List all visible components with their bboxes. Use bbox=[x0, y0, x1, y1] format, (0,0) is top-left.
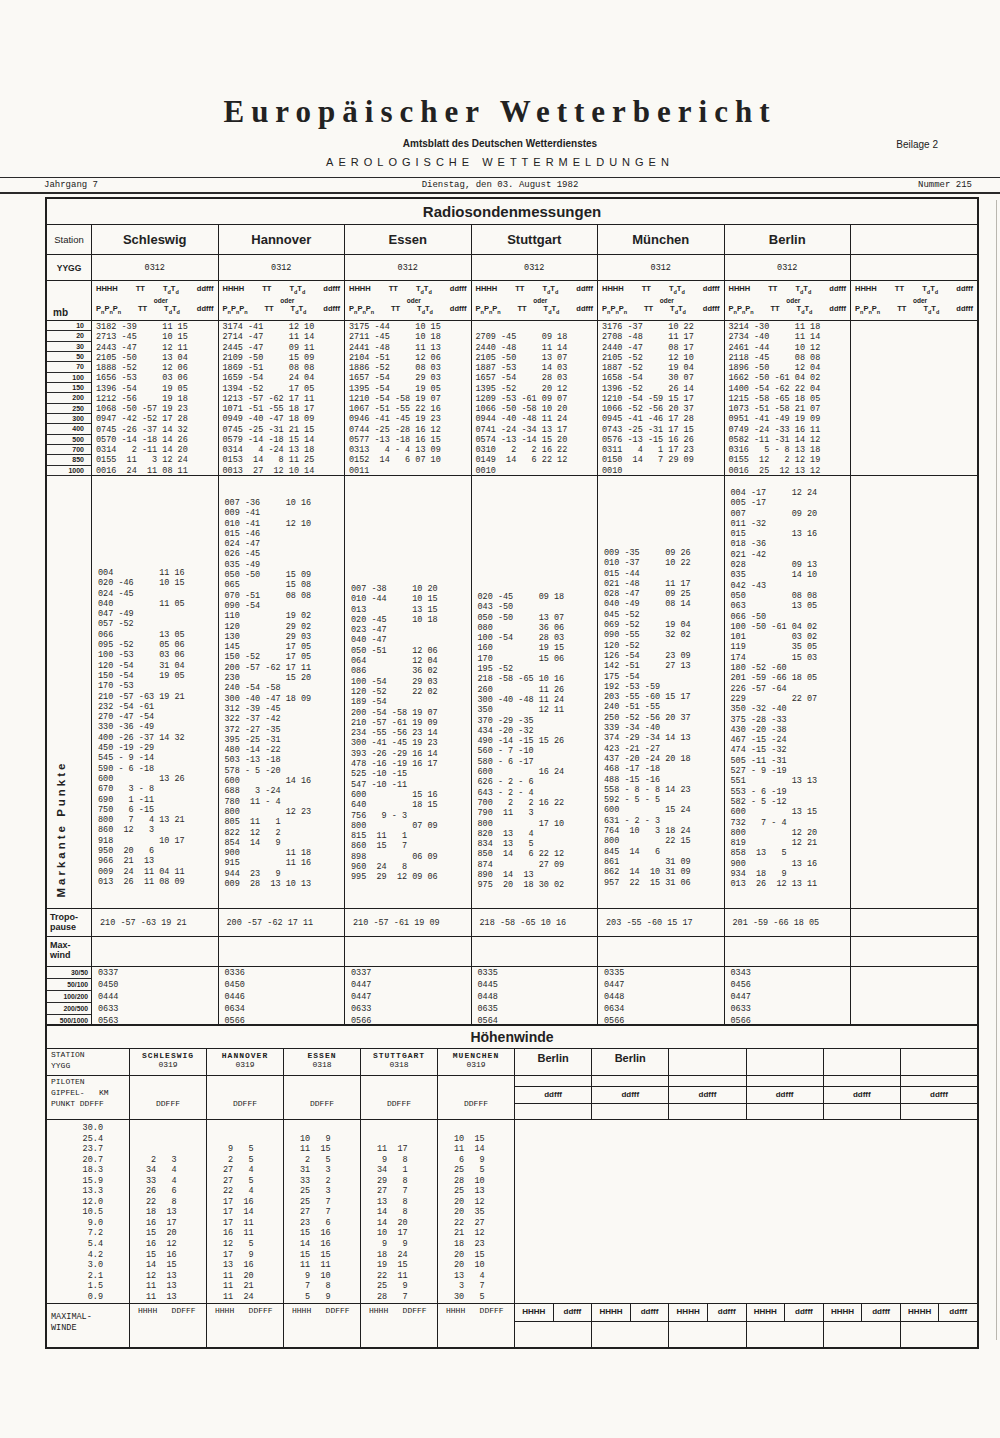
station-name-cell: Stuttgart bbox=[472, 225, 599, 254]
hw-right-title bbox=[824, 1049, 900, 1052]
hw-piloten-cell: DDFFF 24.6 9 5 bbox=[207, 1076, 284, 1119]
hw-right-ddfff: ddfff bbox=[515, 1087, 591, 1104]
yygg-value: 0312 bbox=[725, 255, 852, 280]
hw-wind-right-area bbox=[515, 1120, 977, 1303]
hw-station-name: SCHLESWIG bbox=[130, 1049, 206, 1060]
markante-label: Markante Punkte bbox=[55, 761, 67, 898]
ratio-label: 200/500 bbox=[47, 1003, 91, 1015]
pressure-level-cell: 3182 -39 11 15 2713 -45 10 15 2443 -47 1… bbox=[92, 321, 219, 475]
ratio-cell: 0337 0450 0444 0633 0563 bbox=[92, 967, 219, 1026]
hw-maximal-hhhh: HHHH bbox=[592, 1304, 631, 1322]
hw-maximal-label-cell: MAXIMAL- WINDE bbox=[47, 1304, 130, 1347]
pressure-level-cell: 2709 -45 09 18 2440 -48 11 14 2105 -50 1… bbox=[472, 321, 599, 475]
hw-maximal-right-cell: HHHH ddfff bbox=[901, 1304, 977, 1347]
hw-piloten-ddfff: DDFFF bbox=[438, 1098, 514, 1109]
pressure-level-cell-empty bbox=[851, 321, 977, 475]
masthead-subtitle: Amtsblatt des Deutschen Wetterdienstes bbox=[0, 138, 1000, 149]
masthead-rule-bottom bbox=[0, 192, 1000, 194]
tropopause-value: 200 -57 -62 17 11 bbox=[219, 909, 345, 928]
hw-station-cells: SCHLESWIG 0319 HANNOVER 0319 ESSEN 0318 bbox=[130, 1049, 515, 1075]
tropopause-row: Tropo- pause 210 -57 -63 19 21 200 -57 -… bbox=[47, 908, 977, 936]
yygg-row: YYGG 0312 0312 0312 0312 0312 0312 bbox=[47, 254, 977, 280]
tropopause-cells: 210 -57 -63 19 21 200 -57 -62 17 11 210 … bbox=[92, 909, 851, 936]
hw-piloten-row: PILOTEN GIPFEL- KM PUNKT DDFFF DDFFF 27.… bbox=[47, 1075, 977, 1119]
hw-maximal-ddfff: ddfff bbox=[785, 1304, 823, 1322]
hw-right-spacer bbox=[669, 1076, 745, 1087]
tropopause-cell: 201 -59 -66 18 05 bbox=[725, 909, 852, 936]
hw-station-cell: STUTTGART 0318 bbox=[361, 1049, 438, 1075]
hw-wind-values: 10 9 11 15 2 5 31 3 33 2 25 3 25 7 27 7 … bbox=[284, 1120, 360, 1302]
hw-right-ddfff: ddfff bbox=[747, 1087, 823, 1104]
page-title: Europäischer Wetterbericht bbox=[0, 94, 1000, 130]
hw-piloten-cells: DDFFF 27.2 6 6 DDFFF 24.6 9 5 DDFFF 28.2 bbox=[130, 1076, 515, 1119]
markante-values: 007 -36 10 16 009 -41 010 -41 12 10 015 … bbox=[219, 476, 345, 889]
hw-station-label-cell: STATION YYGG bbox=[47, 1049, 130, 1075]
hw-station-yygg: 0318 bbox=[361, 1060, 437, 1069]
thickness-ratio-rows: 30/50 50/100 100/200 200/500 500/1000 03… bbox=[47, 966, 977, 1026]
mb-level-label: 70 bbox=[47, 362, 91, 372]
maxwind-cell bbox=[472, 937, 599, 966]
hw-maximal-ddfff: ddfff bbox=[554, 1304, 592, 1322]
mb-header-cell: mb bbox=[47, 281, 92, 320]
hw-wind-right-empty bbox=[515, 1120, 977, 1303]
station-name-cells: Schleswig Hannover Essen Stuttgart Münch… bbox=[92, 225, 851, 254]
hw-maximal-ddfff: ddfff bbox=[862, 1304, 900, 1322]
hw-maximal-right-cell: HHHH ddfff bbox=[592, 1304, 669, 1347]
hw-right-title-cell bbox=[669, 1049, 746, 1075]
hw-station-name: HANNOVER bbox=[207, 1049, 283, 1060]
hw-wind-values: 2 3 34 4 33 4 26 6 22 8 18 13 16 17 15 2… bbox=[130, 1120, 206, 1302]
hw-wind-cell: 10 9 11 15 2 5 31 3 33 2 25 3 25 7 27 7 … bbox=[284, 1120, 361, 1303]
column-header-row: mb HHHH TT TdTd ddfff oder bbox=[47, 280, 977, 320]
hw-right-spacer bbox=[515, 1076, 591, 1087]
hw-wind-values: 10 15 11 14 6 9 25 5 28 10 25 13 20 12 2… bbox=[438, 1120, 514, 1302]
hw-maximal-right-cell: HHHH ddfff bbox=[515, 1304, 592, 1347]
hw-maximal-cell: HHHH DDFFF bbox=[284, 1304, 361, 1347]
hw-right-title bbox=[747, 1049, 823, 1052]
mb-label: mb bbox=[53, 307, 68, 318]
markante-values: 020 -45 09 18 043 -50 050 -50 13 07 080 … bbox=[472, 476, 598, 891]
hw-maximal-ddfff: ddfff bbox=[708, 1304, 746, 1322]
mb-level-label: 700 bbox=[47, 445, 91, 455]
hw-station-yygg: 0319 bbox=[207, 1060, 283, 1069]
hw-right-ddfff: ddfff bbox=[824, 1087, 900, 1104]
tropopause-value: 210 -57 -63 19 21 bbox=[92, 909, 218, 928]
hw-right-title bbox=[901, 1049, 977, 1052]
pressure-level-values: 3176 -37 10 22 2708 -48 11 17 2440 -47 0… bbox=[598, 321, 724, 475]
tropopause-value: 203 -55 -60 15 17 bbox=[598, 909, 724, 928]
hw-maximal-ddfff: ddfff bbox=[939, 1304, 977, 1322]
mb-level-label: 50 bbox=[47, 352, 91, 362]
hw-maximal-hhhh: HHHH bbox=[901, 1304, 940, 1322]
hw-maximal-cell: HHHH DDFFF bbox=[130, 1304, 207, 1347]
hw-station-yygg: 0319 bbox=[130, 1060, 206, 1069]
hw-right-ddfff: ddfff bbox=[669, 1087, 745, 1104]
station-name-cell: Hannover bbox=[219, 225, 346, 254]
hw-maximal-hhhh: HHHH bbox=[669, 1304, 708, 1322]
radiosonde-table: Radiosondenmessungen Station Schleswig H… bbox=[45, 197, 979, 1028]
hw-piloten-label-cell: PILOTEN GIPFEL- KM PUNKT DDFFF bbox=[47, 1076, 130, 1119]
maxwind-cells bbox=[92, 937, 851, 966]
hw-right-title-cell bbox=[901, 1049, 977, 1075]
station-name-cell: Essen bbox=[345, 225, 472, 254]
ratio-values: 0335 0445 0448 0635 0564 bbox=[472, 967, 598, 1026]
ratio-label: 30/50 bbox=[47, 967, 91, 979]
hw-station-yygg: 0319 bbox=[438, 1060, 514, 1069]
column-header-cell: HHHH TT TdTd ddfff oder PnPnPn TT TdTd d… bbox=[92, 281, 219, 320]
ratio-cells: 0337 0450 0444 0633 0563 0336 0450 0446 … bbox=[92, 967, 851, 1026]
markante-label-cell: Markante Punkte bbox=[47, 476, 92, 908]
maxwind-cell bbox=[598, 937, 725, 966]
pressure-level-cell: 3176 -37 10 22 2708 -48 11 17 2440 -47 0… bbox=[598, 321, 725, 475]
hw-station-name: ESSEN bbox=[284, 1049, 360, 1060]
ratio-cell-empty bbox=[851, 967, 977, 1026]
markante-cell: 004 -17 12 24 005 -17 007 09 20 011 -32 … bbox=[725, 476, 852, 908]
hw-station-cell: SCHLESWIG 0319 bbox=[130, 1049, 207, 1075]
ratio-values: 0336 0450 0446 0634 0566 bbox=[219, 967, 345, 1026]
mb-level-label: 20 bbox=[47, 331, 91, 341]
mb-level-label: 150 bbox=[47, 383, 91, 393]
yygg-label: YYGG bbox=[47, 255, 92, 280]
hw-station-cell: MUENCHEN 0319 bbox=[438, 1049, 515, 1075]
ratio-cell: 0335 0445 0448 0635 0564 bbox=[472, 967, 599, 1026]
hw-maximal-cells: HHHH DDFFF HHHH DDFFF HHHH DDFFF HHHH DD… bbox=[130, 1304, 515, 1347]
hw-piloten-cell: DDFFF 28.2 11 8 bbox=[284, 1076, 361, 1119]
tropopause-label-cell: Tropo- pause bbox=[47, 909, 92, 936]
markante-cell-empty bbox=[851, 476, 977, 908]
maxwind-label-2: wind bbox=[50, 950, 91, 960]
hw-right-title-cell bbox=[747, 1049, 824, 1075]
pressure-level-cell: 3214 -30 11 18 2734 -40 11 14 2461 -44 1… bbox=[725, 321, 852, 475]
hw-station-yygg: 0318 bbox=[284, 1060, 360, 1069]
hw-punkt-label: PUNKT DDFFF bbox=[47, 1098, 129, 1109]
ratio-values: 0335 0447 0448 0634 0566 bbox=[598, 967, 724, 1026]
hw-maximal-right-cell: HHHH ddfff bbox=[669, 1304, 746, 1347]
hw-right-spacer bbox=[592, 1076, 668, 1087]
markante-cell: 009 -35 09 26 010 -37 10 22 015 -44 021 … bbox=[598, 476, 725, 908]
ratio-labels: 30/50 50/100 100/200 200/500 500/1000 bbox=[47, 967, 92, 1026]
hw-right-title-cell bbox=[824, 1049, 901, 1075]
pressure-level-values: 3182 -39 11 15 2713 -45 10 15 2443 -47 1… bbox=[92, 321, 218, 475]
hw-maximal-row: MAXIMAL- WINDE HHHH DDFFF HHHH DDFFF HHH… bbox=[47, 1303, 977, 1347]
hoehenwinde-title: Höhenwinde bbox=[47, 1026, 977, 1048]
hw-maximal-hhhh: HHHH bbox=[747, 1304, 786, 1322]
hw-right-spacer bbox=[824, 1076, 900, 1087]
ratio-label: 100/200 bbox=[47, 991, 91, 1003]
scan-edge-artifact bbox=[996, 200, 997, 1340]
hw-gipfel-label: GIPFEL- KM bbox=[47, 1087, 129, 1098]
hw-piloten-cell: DDFFF 27.3 8 21 bbox=[438, 1076, 515, 1119]
hw-right-ddfff-cell: ddfff bbox=[515, 1076, 592, 1119]
mb-level-label: 30 bbox=[47, 342, 91, 352]
hw-yygg-label: YYGG bbox=[47, 1060, 129, 1071]
nummer-label: Nummer 215 bbox=[918, 180, 972, 190]
hw-right-title-cell: Berlin bbox=[592, 1049, 669, 1075]
station-name-row: Station Schleswig Hannover Essen Stuttga… bbox=[47, 224, 977, 254]
markante-cell: 007 -36 10 16 009 -41 010 -41 12 10 015 … bbox=[219, 476, 346, 908]
markante-cell: 007 -38 10 20 010 -44 10 15 013 13 15 02… bbox=[345, 476, 472, 908]
hw-altitudes: 30.0 25.4 23.7 20.7 18.3 15.9 13.3 12.0 … bbox=[47, 1120, 129, 1302]
mb-level-label: 10 bbox=[47, 321, 91, 331]
tropopause-cell-empty bbox=[851, 909, 977, 936]
hw-maximal-ddfff: ddfff bbox=[631, 1304, 669, 1322]
station-name-cell: Schleswig bbox=[92, 225, 219, 254]
maxwind-label-1: Max- bbox=[50, 940, 91, 950]
station-label: Station bbox=[47, 225, 92, 254]
hw-station-label: STATION bbox=[47, 1049, 129, 1060]
ratio-values: 0337 0447 0447 0633 0566 bbox=[345, 967, 471, 1026]
column-header-cell: HHHH TT TdTd ddfff oder PnPnPn TT TdTd d… bbox=[345, 281, 472, 320]
hw-right-title: Berlin bbox=[515, 1049, 591, 1064]
yygg-value: 0312 bbox=[345, 255, 472, 280]
maxwind-cell-empty bbox=[851, 937, 977, 966]
hw-right-title-cell: Berlin bbox=[515, 1049, 592, 1075]
hw-maximal-cell: HHHH DDFFF bbox=[438, 1304, 515, 1347]
tropopause-value: 218 -58 -65 10 16 bbox=[472, 909, 598, 928]
hw-right-ddfff: ddfff bbox=[901, 1087, 977, 1104]
markante-cell: 004 11 16 020 -46 10 15 024 -45 040 11 0… bbox=[92, 476, 219, 908]
mb-level-label: 500 bbox=[47, 435, 91, 445]
pressure-level-cell: 3175 -44 10 15 2711 -45 10 18 2441 -48 1… bbox=[345, 321, 472, 475]
issue-date: Dienstag, den 03. August 1982 bbox=[0, 180, 1000, 190]
maxwind-cell bbox=[219, 937, 346, 966]
hw-maximal-right-cell: HHHH ddfff bbox=[824, 1304, 901, 1347]
pressure-level-values: 3174 -41 12 10 2714 -47 11 14 2445 -47 0… bbox=[219, 321, 345, 475]
ratio-cell: 0337 0447 0447 0633 0566 bbox=[345, 967, 472, 1026]
pressure-level-rows: 10 20 30 50 70 100 150 200 250 bbox=[47, 320, 977, 475]
ratio-cell: 0335 0447 0448 0634 0566 bbox=[598, 967, 725, 1026]
hw-right-title bbox=[669, 1049, 745, 1052]
hw-right-title: Berlin bbox=[592, 1049, 668, 1064]
hw-piloten-ddfff: DDFFF bbox=[207, 1098, 283, 1109]
yygg-value: 0312 bbox=[92, 255, 219, 280]
empty-yygg-cell bbox=[851, 255, 977, 280]
pressure-level-cell: 3174 -41 12 10 2714 -47 11 14 2445 -47 0… bbox=[219, 321, 346, 475]
hw-maximal-hhhh: HHHH bbox=[515, 1304, 554, 1322]
markante-values: 004 11 16 020 -46 10 15 024 -45 040 11 0… bbox=[92, 476, 218, 887]
masthead-rule-top bbox=[0, 177, 1000, 178]
mb-level-label: 400 bbox=[47, 424, 91, 434]
mb-level-label: 200 bbox=[47, 393, 91, 403]
mb-level-label: 300 bbox=[47, 414, 91, 424]
hw-wind-cells: 2 3 34 4 33 4 26 6 22 8 18 13 16 17 15 2… bbox=[130, 1120, 515, 1303]
hw-altitude-labels: 30.0 25.4 23.7 20.7 18.3 15.9 13.3 12.0 … bbox=[47, 1120, 130, 1303]
ratio-values: 0337 0450 0444 0633 0563 bbox=[92, 967, 218, 1026]
hw-right-ddfff-cells: ddfff ddfff ddfff ddfff bbox=[515, 1076, 977, 1119]
pressure-level-values: 2709 -45 09 18 2440 -48 11 14 2105 -50 1… bbox=[472, 321, 598, 475]
column-header-cell-empty: HHHH TT TdTd ddfff oder PnPnPn TT TdTd d… bbox=[851, 281, 977, 320]
hw-piloten-ddfff: DDFFF bbox=[130, 1098, 206, 1109]
pressure-level-values: 3214 -30 11 18 2734 -40 11 14 2461 -44 1… bbox=[725, 321, 851, 475]
tropopause-label-1: Tropo- bbox=[50, 912, 91, 922]
mb-level-labels: 10 20 30 50 70 100 150 200 250 bbox=[47, 321, 92, 475]
hw-station-name: MUENCHEN bbox=[438, 1049, 514, 1060]
hw-wind-values: 9 5 2 5 27 4 27 5 22 4 17 16 17 14 17 11… bbox=[207, 1120, 283, 1302]
markante-values: 009 -35 09 26 010 -37 10 22 015 -44 021 … bbox=[598, 476, 724, 888]
tropopause-cell: 210 -57 -63 19 21 bbox=[92, 909, 219, 936]
markante-cell: 020 -45 09 18 043 -50 050 -50 13 07 080 … bbox=[472, 476, 599, 908]
hw-maximal-label-2: WINDE bbox=[47, 1323, 129, 1334]
ratio-cell: 0336 0450 0446 0634 0566 bbox=[219, 967, 346, 1026]
tropopause-cell: 218 -58 -65 10 16 bbox=[472, 909, 599, 936]
hw-piloten-ddfff: DDFFF bbox=[284, 1098, 360, 1109]
column-header-cell: HHHH TT TdTd ddfff oder PnPnPn TT TdTd d… bbox=[725, 281, 852, 320]
column-header-cell: HHHH TT TdTd ddfff oder PnPnPn TT TdTd d… bbox=[219, 281, 346, 320]
section-title: AEROLOGISCHE WETTERMELDUNGEN bbox=[0, 156, 1000, 168]
hw-wind-cell: 9 5 2 5 27 4 27 5 22 4 17 16 17 14 17 11… bbox=[207, 1120, 284, 1303]
mb-level-label: 850 bbox=[47, 455, 91, 465]
hw-maximal-cell: HHHH DDFFF bbox=[207, 1304, 284, 1347]
hw-right-spacer bbox=[901, 1076, 977, 1087]
hw-right-ddfff-cell: ddfff bbox=[592, 1076, 669, 1119]
hw-right-ddfff-cell: ddfff bbox=[901, 1076, 977, 1119]
maxwind-cell bbox=[92, 937, 219, 966]
hw-station-name: STUTTGART bbox=[361, 1049, 437, 1060]
empty-station-cell bbox=[851, 225, 977, 254]
hw-maximal-hhhh: HHHH bbox=[824, 1304, 863, 1322]
hw-wind-cell: 2 3 34 4 33 4 26 6 22 8 18 13 16 17 15 2… bbox=[130, 1120, 207, 1303]
station-name-cell: Berlin bbox=[725, 225, 852, 254]
markante-values: 004 -17 12 24 005 -17 007 09 20 011 -32 … bbox=[725, 476, 851, 890]
yygg-value: 0312 bbox=[219, 255, 346, 280]
hw-maximal-right-cells: HHHH ddfff HHHH ddfff HHHH bbox=[515, 1304, 977, 1347]
ratio-cell: 0343 0456 0447 0633 0566 bbox=[725, 967, 852, 1026]
hw-wind-cell: 11 17 9 8 34 1 29 8 27 7 13 8 14 8 14 20… bbox=[361, 1120, 438, 1303]
maxwind-cell bbox=[725, 937, 852, 966]
hw-right-ddfff-cell: ddfff bbox=[669, 1076, 746, 1119]
hw-right-spacer bbox=[747, 1076, 823, 1087]
column-header-cell: HHHH TT TdTd ddfff oder PnPnPn TT TdTd d… bbox=[598, 281, 725, 320]
hw-maximal-label-1: MAXIMAL- bbox=[47, 1304, 129, 1323]
hw-station-row: STATION YYGG SCHLESWIG 0319 HANNOVER 031… bbox=[47, 1048, 977, 1075]
hw-right-ddfff-cell: ddfff bbox=[747, 1076, 824, 1119]
maxwind-label-cell: Max- wind bbox=[47, 937, 92, 966]
mb-level-label: 250 bbox=[47, 404, 91, 414]
tropopause-cell: 210 -57 -61 19 09 bbox=[345, 909, 472, 936]
tropopause-value: 201 -59 -66 18 05 bbox=[725, 909, 851, 928]
hw-right-ddfff: ddfff bbox=[592, 1087, 668, 1104]
beilage-label: Beilage 2 bbox=[896, 139, 938, 150]
station-name-cell: München bbox=[598, 225, 725, 254]
pressure-level-values: 3175 -44 10 15 2711 -45 10 18 2441 -48 1… bbox=[345, 321, 471, 475]
ratio-values: 0343 0456 0447 0633 0566 bbox=[725, 967, 851, 1026]
markante-punkte-rows: Markante Punkte 004 11 16 020 -46 10 15 … bbox=[47, 475, 977, 908]
column-header-cell: HHHH TT TdTd ddfff oder PnPnPn TT TdTd d… bbox=[472, 281, 599, 320]
yygg-value: 0312 bbox=[472, 255, 599, 280]
hw-piloten-cell: DDFFF 23.7 11 17 bbox=[361, 1076, 438, 1119]
column-header-cells: HHHH TT TdTd ddfff oder PnPnPn TT TdTd d… bbox=[92, 281, 851, 320]
maxwind-row: Max- wind bbox=[47, 936, 977, 966]
hw-wind-cell: 10 15 11 14 6 9 25 5 28 10 25 13 20 12 2… bbox=[438, 1120, 515, 1303]
mb-level-label: 100 bbox=[47, 373, 91, 383]
markante-values: 007 -38 10 20 010 -44 10 15 013 13 15 02… bbox=[345, 476, 471, 883]
radiosonde-title: Radiosondenmessungen bbox=[47, 199, 977, 224]
mb-level-label: 1000 bbox=[47, 466, 91, 476]
hw-wind-values: 11 17 9 8 34 1 29 8 27 7 13 8 14 8 14 20… bbox=[361, 1120, 437, 1302]
tropopause-value: 210 -57 -61 19 09 bbox=[345, 909, 471, 928]
hw-right-ddfff-cell: ddfff bbox=[824, 1076, 901, 1119]
hw-wind-data-rows: 30.0 25.4 23.7 20.7 18.3 15.9 13.3 12.0 … bbox=[47, 1119, 977, 1303]
hw-station-cell: ESSEN 0318 bbox=[284, 1049, 361, 1075]
markante-cells: 004 11 16 020 -46 10 15 024 -45 040 11 0… bbox=[92, 476, 851, 908]
tropopause-label-2: pause bbox=[50, 922, 91, 932]
hoehenwinde-table: Höhenwinde STATION YYGG SCHLESWIG 0319 H… bbox=[45, 1024, 979, 1349]
pressure-level-cells: 3182 -39 11 15 2713 -45 10 15 2443 -47 1… bbox=[92, 321, 851, 475]
tropopause-cell: 203 -55 -60 15 17 bbox=[598, 909, 725, 936]
ratio-label: 50/100 bbox=[47, 979, 91, 991]
yygg-value: 0312 bbox=[598, 255, 725, 280]
hw-station-cell: HANNOVER 0319 bbox=[207, 1049, 284, 1075]
maxwind-cell bbox=[345, 937, 472, 966]
yygg-cells: 0312 0312 0312 0312 0312 0312 bbox=[92, 255, 851, 280]
hw-maximal-right-cell: HHHH ddfff bbox=[747, 1304, 824, 1347]
scanned-weather-bulletin-page: Europäischer Wetterbericht Amtsblatt des… bbox=[0, 0, 1000, 1438]
hw-maximal-cell: HHHH DDFFF bbox=[361, 1304, 438, 1347]
hw-piloten-cell: DDFFF 27.2 6 6 bbox=[130, 1076, 207, 1119]
tropopause-cell: 200 -57 -62 17 11 bbox=[219, 909, 346, 936]
hw-piloten-ddfff: DDFFF bbox=[361, 1098, 437, 1109]
hw-piloten-label: PILOTEN bbox=[47, 1076, 129, 1087]
hw-right-title-cells: Berlin Berlin bbox=[515, 1049, 977, 1075]
